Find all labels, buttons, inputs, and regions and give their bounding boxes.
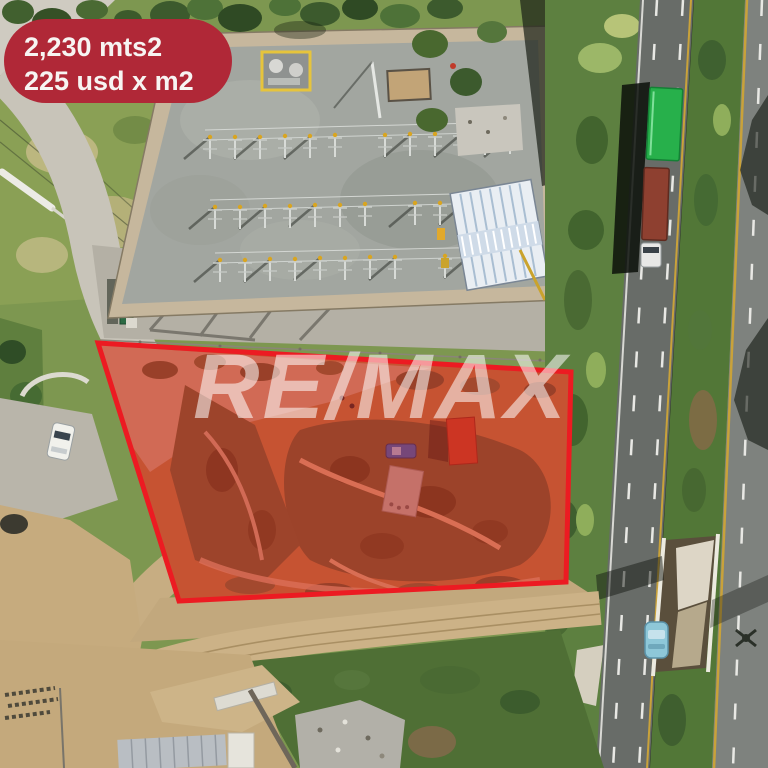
auxiliary-building — [387, 69, 431, 101]
water-tank — [0, 514, 28, 534]
rubble-pit — [455, 104, 523, 156]
aerial-listing-photo: RE/MAX 2,230 mts2 225 usd x m2 — [0, 0, 768, 768]
highway — [596, 0, 768, 768]
aerial-scene: RE/MAX 2,230 mts2 225 usd x m2 — [0, 0, 768, 768]
price-badge: 2,230 mts2 225 usd x m2 — [4, 19, 232, 103]
badge-price-text: 225 usd x m2 — [24, 66, 194, 96]
transformer-pad — [262, 52, 310, 90]
red-container-truck — [642, 168, 669, 241]
green-container-truck — [646, 87, 683, 161]
remax-watermark: RE/MAX — [193, 336, 570, 438]
badge-area-text: 2,230 mts2 — [24, 32, 162, 62]
blue-car-highway — [645, 622, 668, 658]
truck-cab — [641, 243, 661, 267]
metal-roof — [117, 734, 226, 768]
